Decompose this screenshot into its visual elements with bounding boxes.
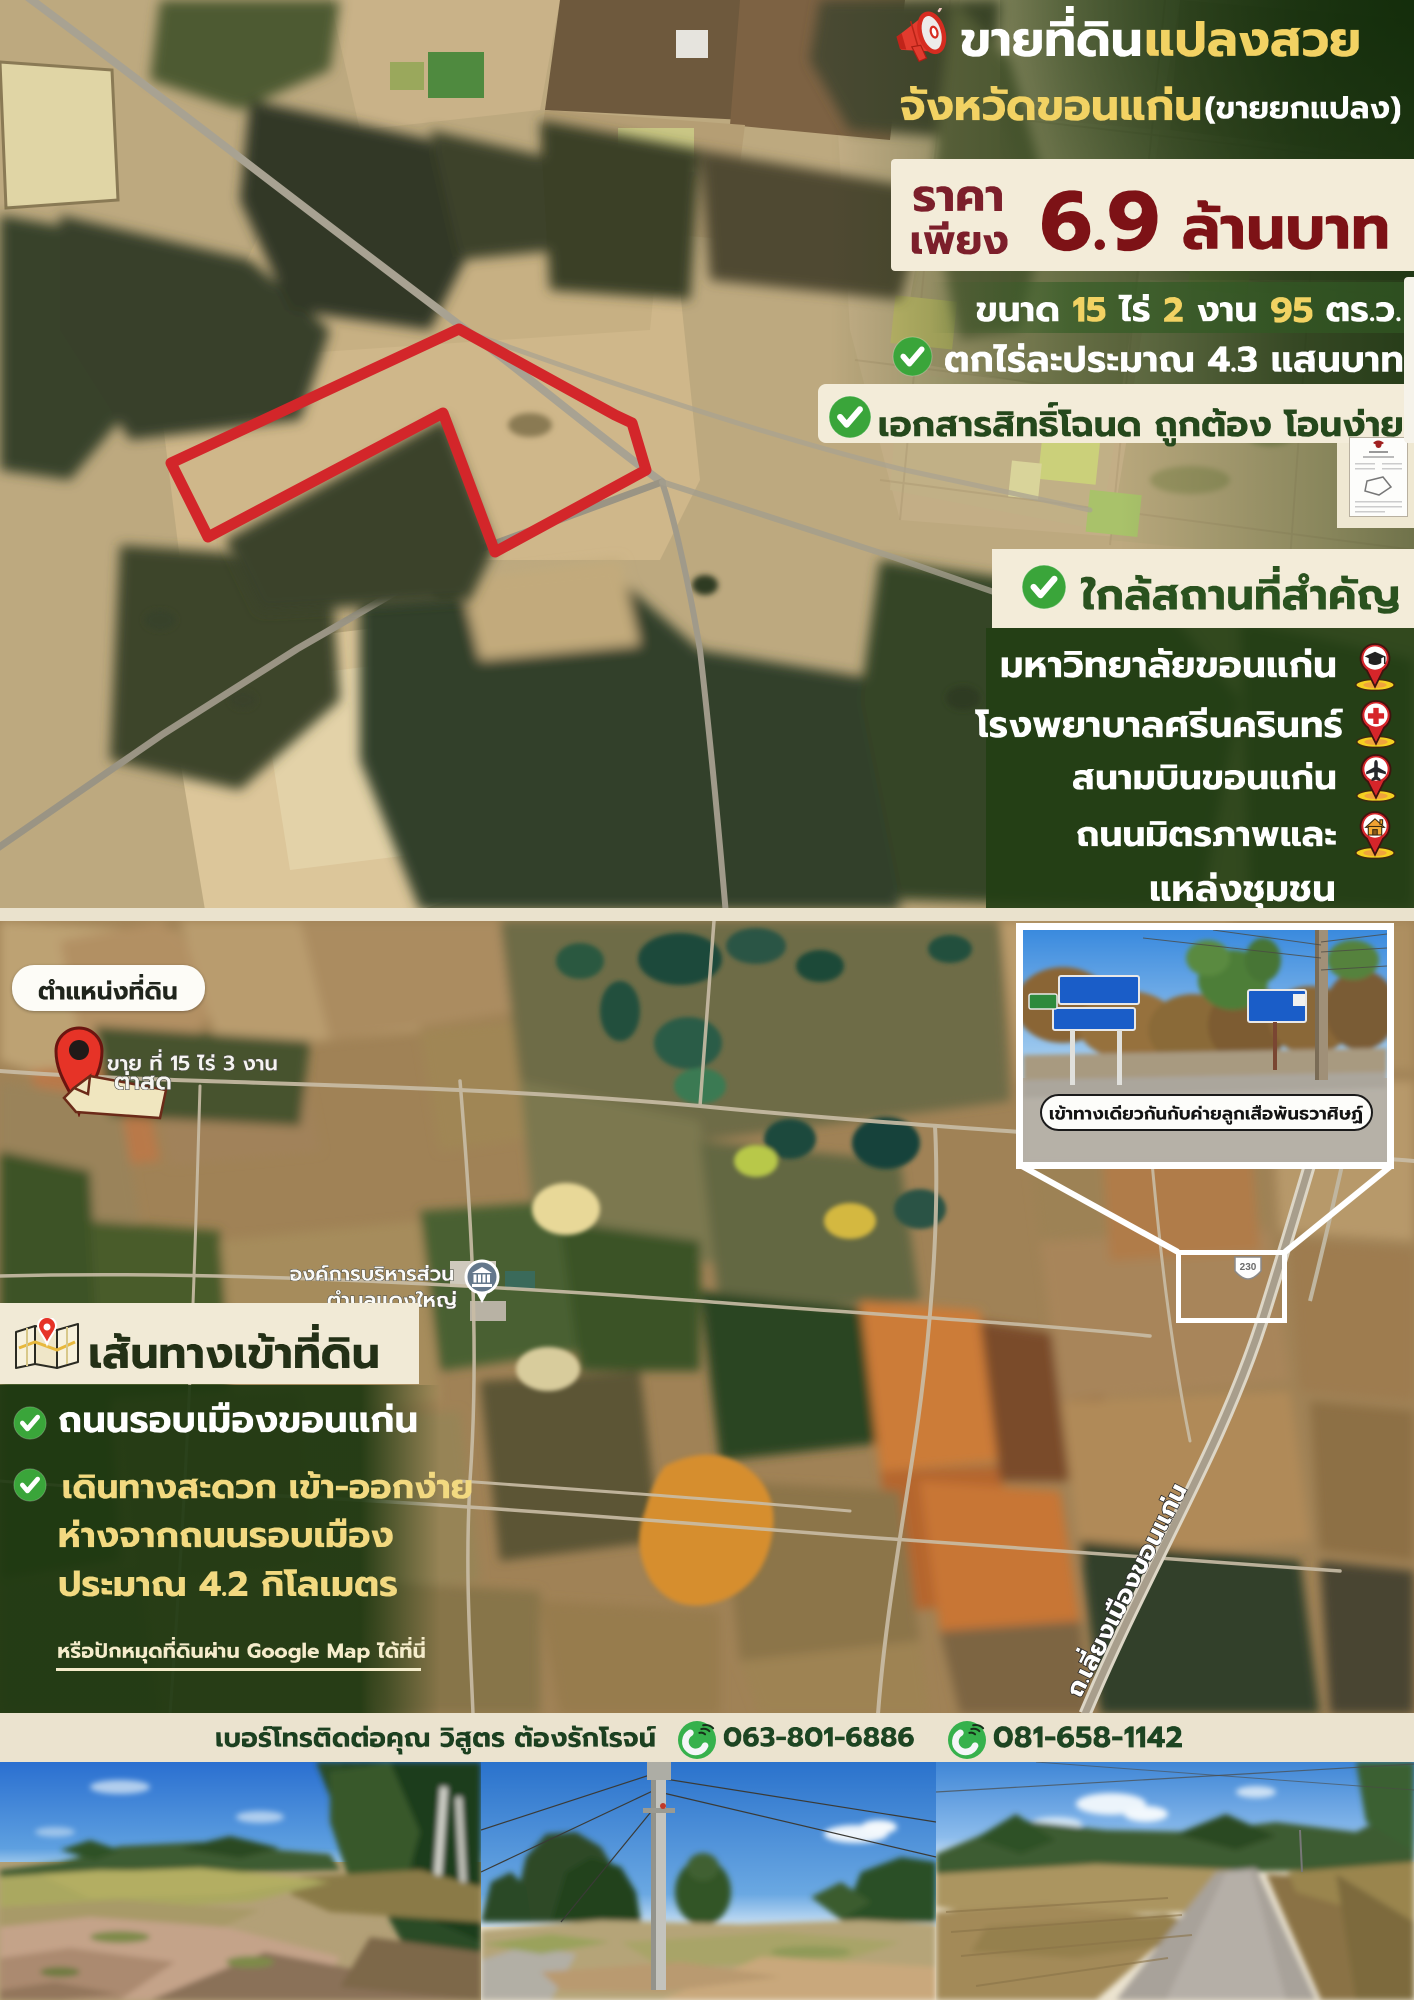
svg-text:230: 230 [1240,1262,1257,1273]
